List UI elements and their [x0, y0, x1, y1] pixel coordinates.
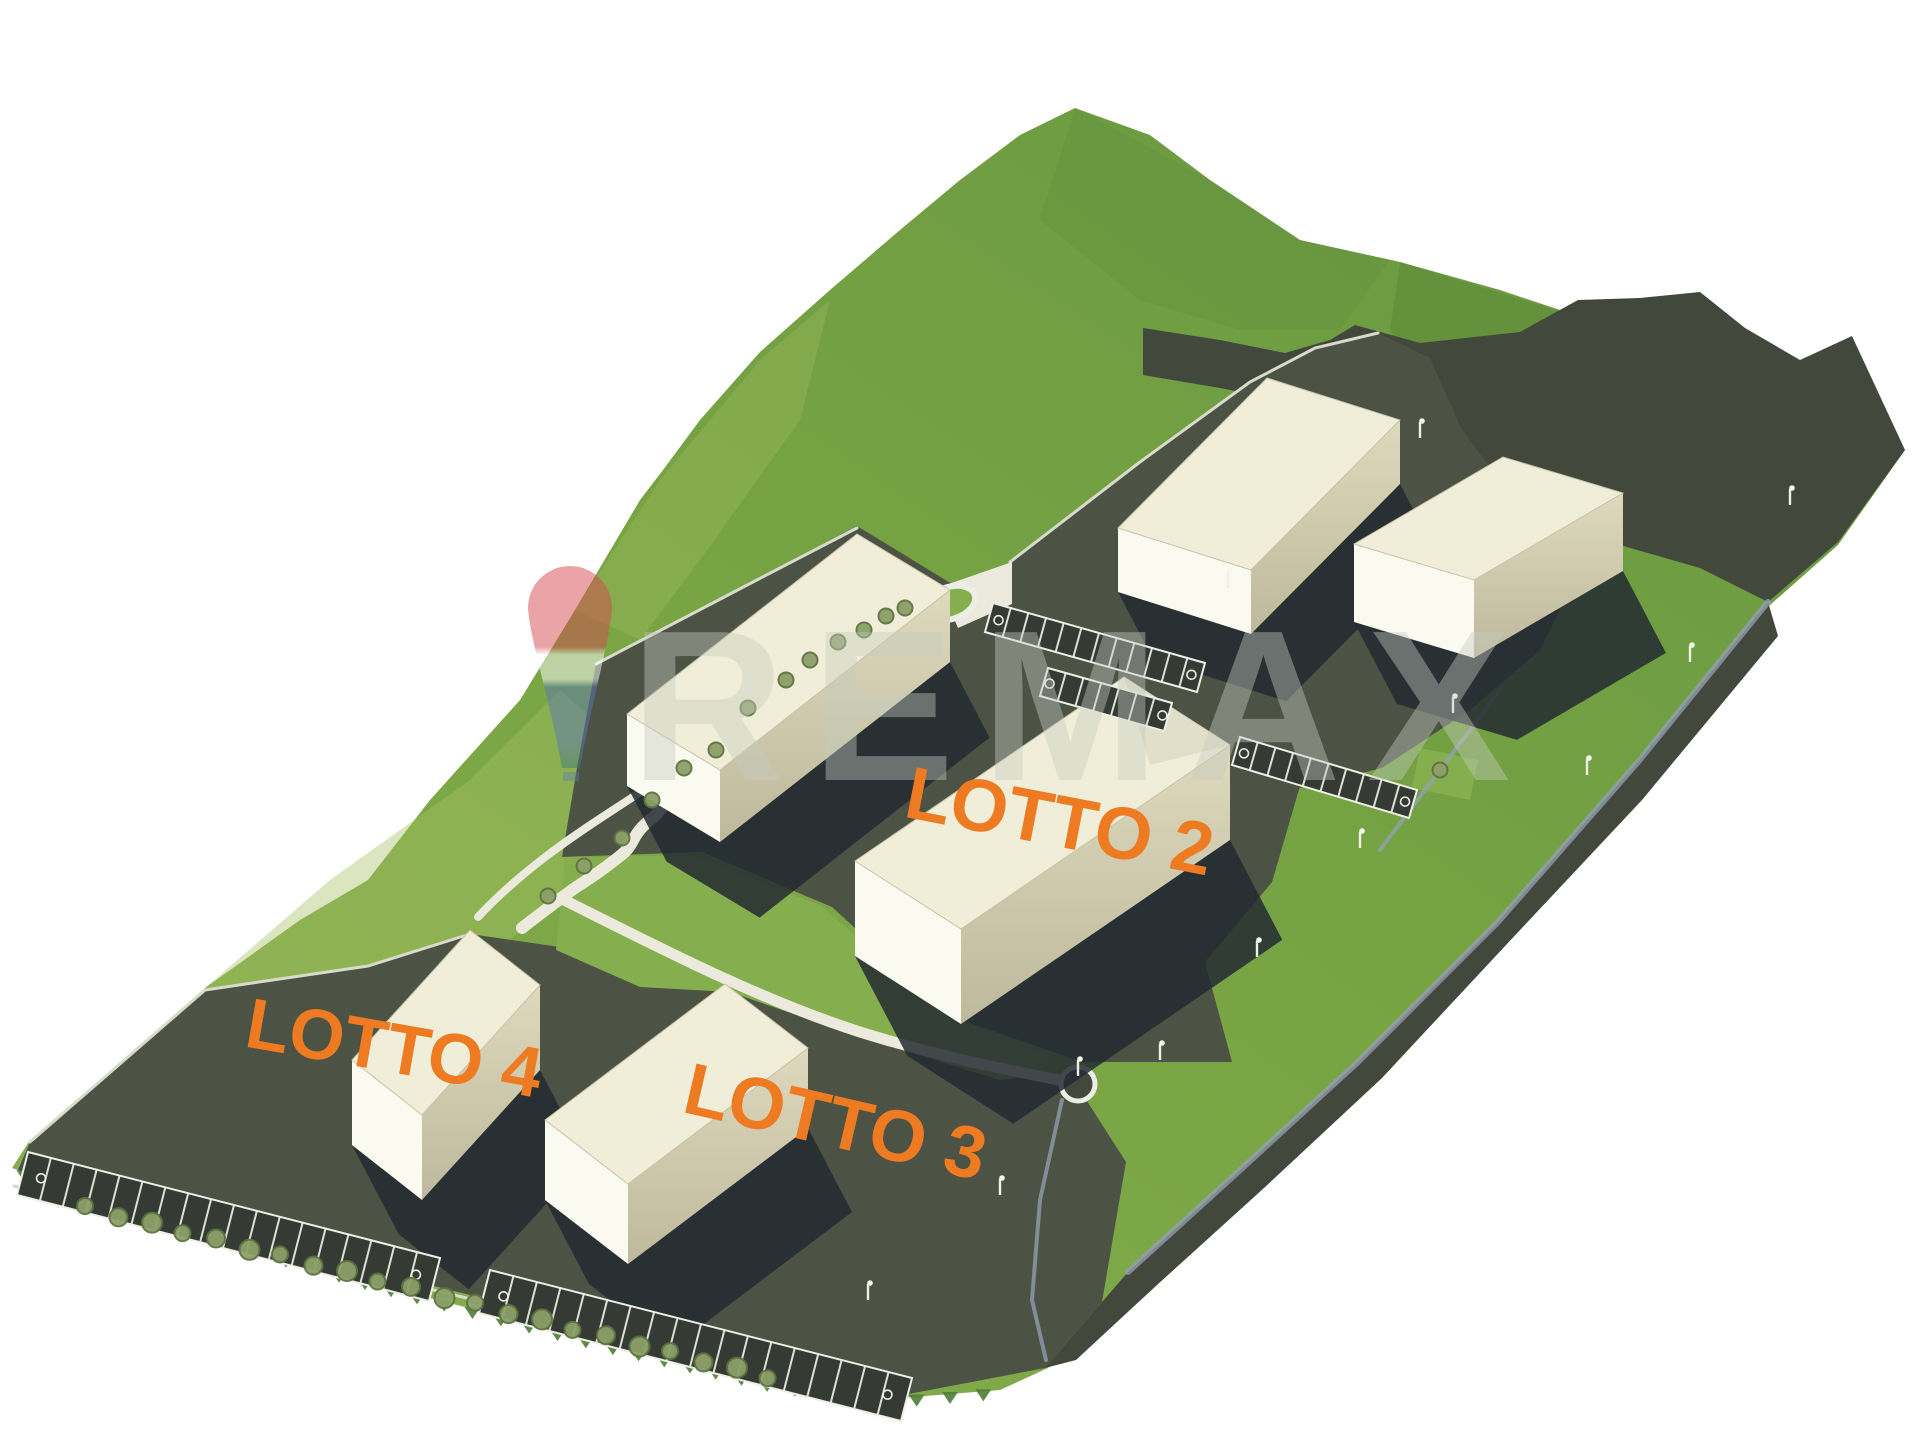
tree-icon — [110, 1208, 128, 1226]
street-lamp-head — [1077, 1056, 1083, 1062]
tree-icon — [500, 1305, 518, 1323]
tree-icon — [532, 1309, 552, 1329]
site-plan-rendering: REMAX LOTTO 2 LOTTO 4 LOTTO 3 — [0, 0, 1920, 1439]
tree-icon — [142, 1213, 162, 1233]
sawtooth-tooth — [942, 1392, 958, 1404]
tree-icon — [207, 1229, 225, 1247]
street-lamp-head — [1789, 485, 1795, 491]
tree-icon — [435, 1288, 455, 1308]
tree-icon — [77, 1198, 93, 1214]
tree-icon — [467, 1295, 483, 1311]
tree-icon — [175, 1225, 191, 1241]
tree-icon — [337, 1261, 357, 1281]
tree-icon — [662, 1343, 678, 1359]
street-lamp-head — [999, 1175, 1005, 1181]
street-lamp-head — [1689, 642, 1695, 648]
street-lamp-head — [1256, 937, 1262, 943]
tree-icon — [630, 1337, 650, 1357]
tree-icon — [597, 1326, 615, 1344]
street-lamp-head — [1586, 755, 1592, 761]
tree-icon — [541, 889, 556, 904]
sawtooth-tooth — [975, 1389, 991, 1401]
tree-icon — [695, 1353, 713, 1371]
remax-balloon-basket-icon — [563, 772, 579, 781]
tree-icon — [402, 1278, 420, 1296]
sawtooth-tooth — [909, 1395, 925, 1407]
street-lamp-head — [1227, 568, 1233, 574]
tree-icon — [272, 1246, 288, 1262]
tree-icon — [727, 1358, 747, 1378]
tree-icon — [565, 1322, 581, 1338]
site-plan-screenshot: REMAX LOTTO 2 LOTTO 4 LOTTO 3 — [0, 0, 1920, 1439]
street-lamp-head — [1359, 828, 1365, 834]
street-lamp-head — [867, 1280, 873, 1286]
tree-icon — [577, 859, 592, 874]
street-lamp-head — [1159, 1040, 1165, 1046]
tree-icon — [240, 1240, 260, 1260]
street-lamp-head — [1419, 418, 1425, 424]
tree-icon — [615, 831, 630, 846]
tree-icon — [760, 1370, 776, 1386]
tree-icon — [370, 1274, 386, 1290]
tree-icon — [305, 1257, 323, 1275]
